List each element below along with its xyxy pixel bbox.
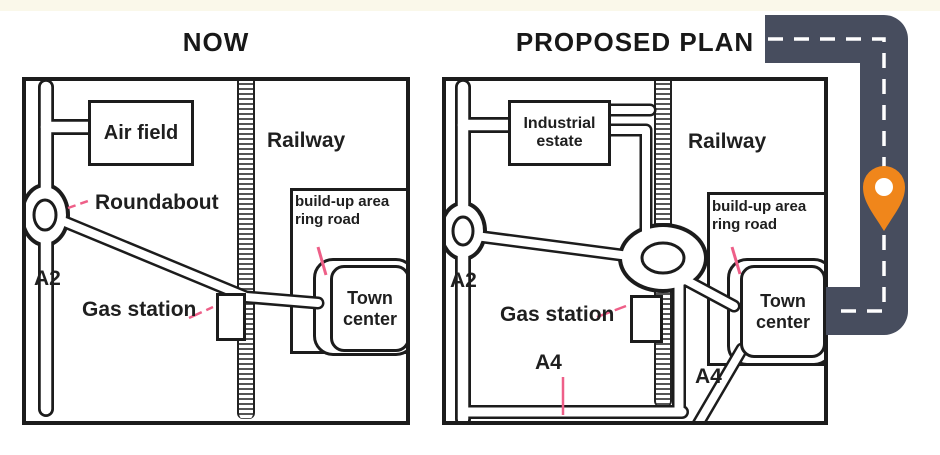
town-center-line2: center xyxy=(756,312,810,333)
town-center-line1: Town xyxy=(760,291,806,312)
decorative-road-graphic xyxy=(0,0,940,455)
map-comparison-page: { "titles": { "now": "NOW", "proposed": … xyxy=(0,0,940,455)
pin-center-dot xyxy=(875,178,893,196)
town-center-box: Town center xyxy=(740,265,826,358)
